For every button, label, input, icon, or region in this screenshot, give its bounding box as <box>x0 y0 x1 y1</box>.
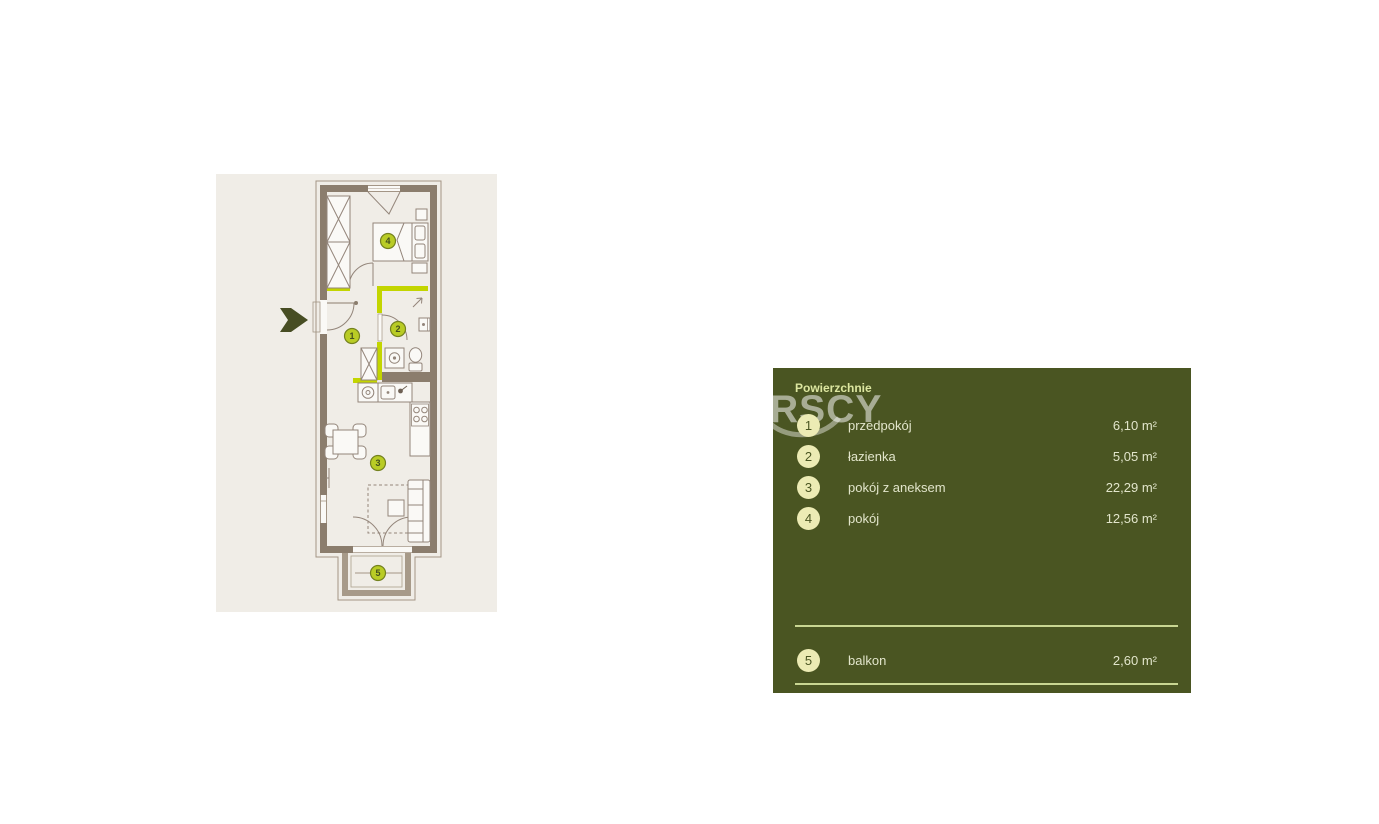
wardrobe <box>327 196 350 288</box>
legend-label-4: pokój <box>848 511 879 526</box>
kitchen <box>358 383 430 456</box>
legend-area-4: 12,56 m² <box>1106 511 1157 526</box>
legend-badge-4: 4 <box>797 507 820 530</box>
legend-area-2: 5,05 m² <box>1113 449 1157 464</box>
separator-line-bottom <box>795 683 1178 685</box>
legend-title: Powierzchnie <box>795 381 872 395</box>
hall-wardrobe <box>361 348 377 380</box>
entry-arrow-icon <box>280 308 308 332</box>
balcony-door <box>353 517 412 553</box>
legend-panel: RSCY Powierzchnie 1 przedpokój 6,10 m² 2… <box>773 368 1191 693</box>
coffee-table <box>388 500 404 516</box>
legend-area-3: 22,29 m² <box>1106 480 1157 495</box>
legend-row-pokoj-z-aneksem: 3 pokój z aneksem 22,29 m² <box>773 474 1191 500</box>
legend-label-1: przedpokój <box>848 418 912 433</box>
cooktop <box>410 402 430 456</box>
window-top <box>368 185 400 214</box>
legend-row-lazienka: 2 łazienka 5,05 m² <box>773 443 1191 469</box>
slope-arrow-icon <box>413 298 422 307</box>
room-badge-3-number: 3 <box>375 458 380 468</box>
room-badge-1-number: 1 <box>349 331 354 341</box>
floor-plan-canvas: 1 2 3 4 5 <box>216 174 497 612</box>
room-badge-2-number: 2 <box>395 324 400 334</box>
legend-row-pokoj: 4 pokój 12,56 m² <box>773 505 1191 531</box>
legend-badge-3: 3 <box>797 476 820 499</box>
window-left <box>320 495 327 523</box>
room-badge-2: 2 <box>391 322 406 337</box>
legend-label-3: pokój z aneksem <box>848 480 946 495</box>
legend-label-5: balkon <box>848 653 886 668</box>
room-badge-1: 1 <box>345 329 360 344</box>
legend-area-1: 6,10 m² <box>1113 418 1157 433</box>
sofa <box>408 480 430 542</box>
oven <box>358 383 378 402</box>
dining-set <box>325 424 366 459</box>
washing-machine <box>385 348 404 368</box>
washbasin <box>419 318 430 331</box>
toilet <box>409 348 422 371</box>
legend-area-5: 2,60 m² <box>1113 653 1157 668</box>
legend-row-balkon: 5 balkon 2,60 m² <box>773 647 1191 673</box>
floor-plan: 1 2 3 4 5 <box>216 174 497 612</box>
bedroom-door <box>349 263 373 287</box>
room-badge-5-number: 5 <box>375 568 380 578</box>
room-badge-4: 4 <box>381 234 396 249</box>
room-badge-4-number: 4 <box>385 236 390 246</box>
room-badge-5: 5 <box>371 566 386 581</box>
bathroom-fixtures <box>385 298 430 371</box>
room-badge-3: 3 <box>371 456 386 471</box>
nightstand <box>416 209 427 220</box>
legend-badge-5: 5 <box>797 649 820 672</box>
separator-line-top <box>795 625 1178 627</box>
legend-badge-1: 1 <box>797 414 820 437</box>
legend-label-2: łazienka <box>848 449 896 464</box>
legend-row-przedpokoj: 1 przedpokój 6,10 m² <box>773 412 1191 438</box>
legend-badge-2: 2 <box>797 445 820 468</box>
bedside-bench <box>412 263 427 273</box>
kitchen-sink <box>378 383 412 402</box>
